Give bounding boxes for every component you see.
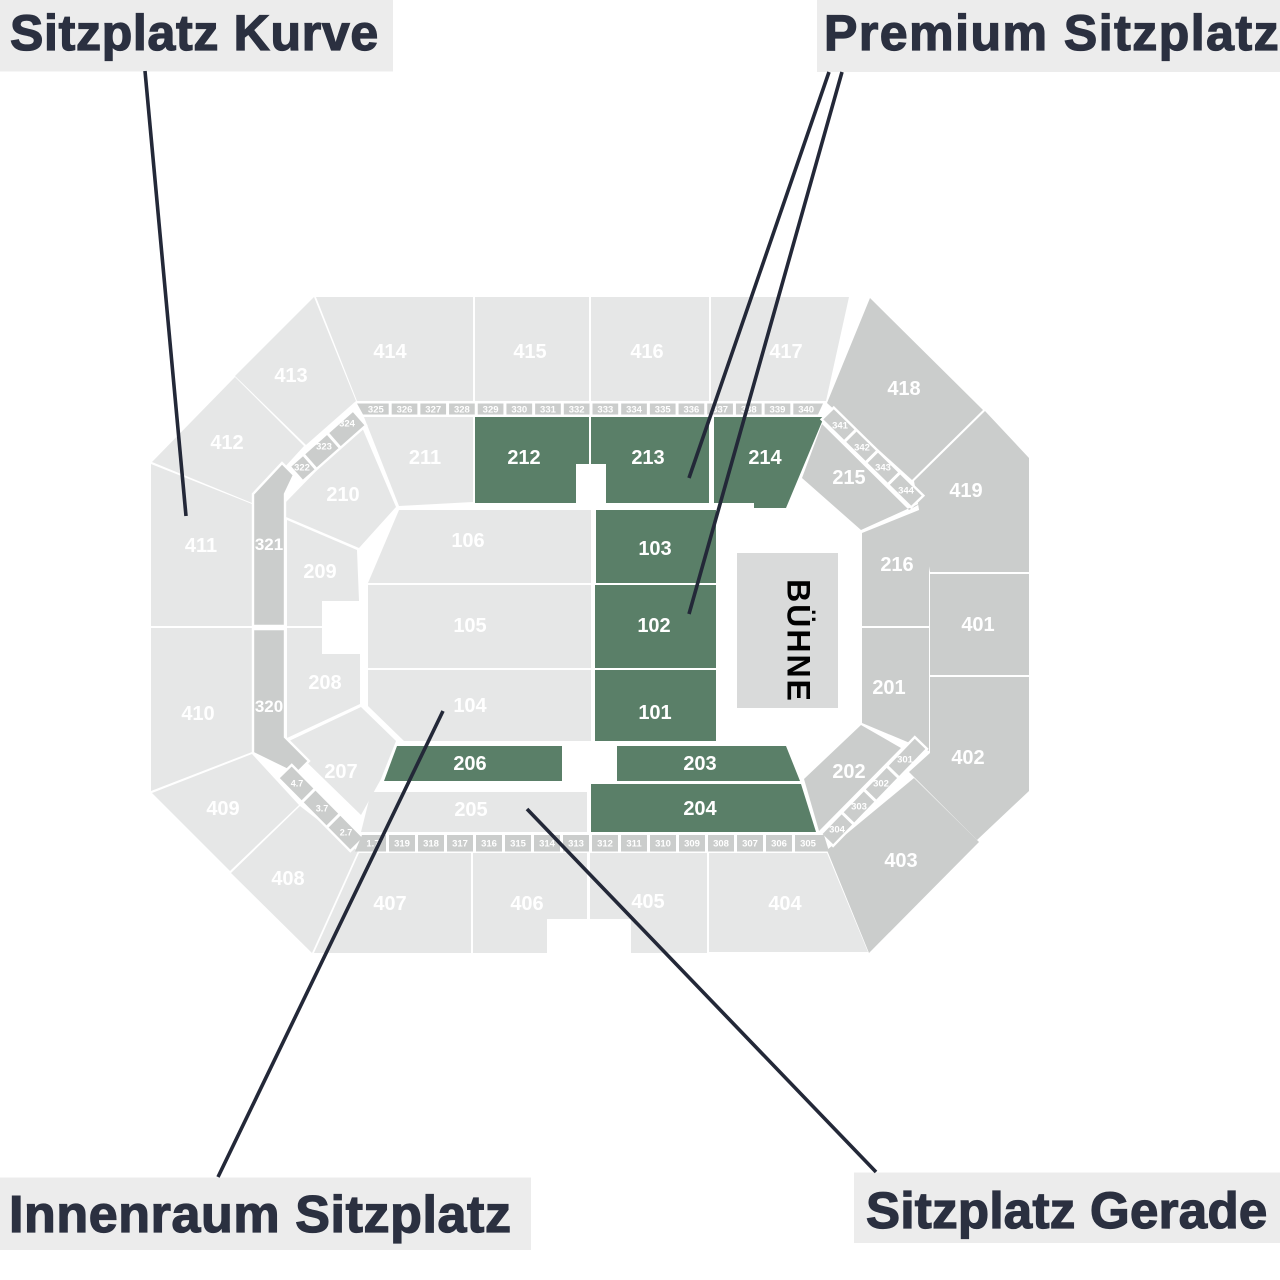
- svg-text:321: 321: [255, 535, 283, 554]
- svg-text:343: 343: [875, 462, 891, 473]
- svg-text:340: 340: [798, 404, 814, 415]
- svg-text:342: 342: [854, 442, 870, 453]
- svg-text:335: 335: [655, 404, 672, 415]
- svg-text:344: 344: [898, 485, 915, 496]
- svg-text:328: 328: [454, 404, 470, 415]
- svg-text:405: 405: [631, 891, 664, 913]
- svg-text:408: 408: [271, 868, 304, 890]
- svg-text:206: 206: [453, 753, 486, 775]
- svg-text:417: 417: [769, 341, 802, 363]
- svg-text:416: 416: [630, 341, 663, 363]
- svg-text:339: 339: [770, 404, 786, 415]
- svg-text:101: 101: [638, 702, 671, 724]
- svg-text:307: 307: [742, 838, 758, 849]
- svg-text:210: 210: [326, 484, 359, 506]
- svg-text:309: 309: [684, 838, 700, 849]
- svg-text:106: 106: [451, 530, 484, 552]
- svg-text:341: 341: [832, 420, 849, 431]
- svg-text:329: 329: [483, 404, 499, 415]
- svg-text:319: 319: [394, 838, 410, 849]
- svg-text:2.7: 2.7: [340, 827, 353, 837]
- svg-text:411: 411: [185, 535, 217, 557]
- svg-text:334: 334: [626, 404, 643, 415]
- svg-text:320: 320: [255, 697, 283, 716]
- svg-text:316: 316: [481, 838, 497, 849]
- svg-text:413: 413: [274, 365, 307, 387]
- svg-text:216: 216: [880, 554, 913, 576]
- svg-text:102: 102: [637, 615, 670, 637]
- svg-text:336: 336: [683, 404, 699, 415]
- svg-text:311: 311: [626, 838, 642, 849]
- svg-text:410: 410: [181, 703, 214, 725]
- svg-text:333: 333: [597, 404, 613, 415]
- svg-text:404: 404: [768, 893, 802, 915]
- svg-text:204: 204: [683, 798, 717, 820]
- svg-text:325: 325: [368, 404, 385, 415]
- svg-text:419: 419: [949, 480, 982, 502]
- svg-text:Premium Sitzplatz: Premium Sitzplatz: [824, 5, 1280, 61]
- svg-text:209: 209: [303, 561, 336, 583]
- svg-text:418: 418: [887, 378, 920, 400]
- svg-text:Sitzplatz Gerade: Sitzplatz Gerade: [866, 1182, 1268, 1239]
- svg-text:302: 302: [873, 778, 889, 789]
- svg-text:203: 203: [683, 753, 716, 775]
- svg-text:403: 403: [884, 850, 917, 872]
- svg-text:3.7: 3.7: [316, 803, 329, 813]
- svg-text:Sitzplatz Kurve: Sitzplatz Kurve: [10, 5, 379, 61]
- svg-text:4.7: 4.7: [291, 778, 304, 788]
- svg-text:304: 304: [829, 824, 846, 835]
- svg-text:308: 308: [713, 838, 729, 849]
- svg-text:BÜHNE: BÜHNE: [781, 579, 817, 703]
- svg-text:201: 201: [872, 677, 905, 699]
- svg-text:Innenraum Sitzplatz: Innenraum Sitzplatz: [9, 1186, 512, 1244]
- svg-text:407: 407: [373, 893, 406, 915]
- svg-text:306: 306: [771, 838, 787, 849]
- svg-text:317: 317: [452, 838, 468, 849]
- svg-text:215: 215: [832, 467, 865, 489]
- svg-text:205: 205: [454, 799, 487, 821]
- svg-text:322: 322: [294, 462, 310, 473]
- svg-text:330: 330: [511, 404, 527, 415]
- svg-text:318: 318: [423, 838, 439, 849]
- svg-text:105: 105: [453, 615, 486, 637]
- svg-text:103: 103: [638, 538, 671, 560]
- svg-text:208: 208: [308, 672, 341, 694]
- svg-text:303: 303: [851, 801, 867, 812]
- svg-text:211: 211: [409, 447, 441, 469]
- svg-text:315: 315: [510, 838, 527, 849]
- svg-text:323: 323: [316, 441, 332, 452]
- svg-text:409: 409: [206, 798, 239, 820]
- svg-text:332: 332: [569, 404, 585, 415]
- svg-text:327: 327: [425, 404, 441, 415]
- svg-text:207: 207: [324, 761, 357, 783]
- svg-text:401: 401: [961, 614, 994, 636]
- svg-text:202: 202: [832, 761, 865, 783]
- svg-text:301: 301: [897, 754, 914, 765]
- svg-text:402: 402: [951, 747, 984, 769]
- svg-text:312: 312: [597, 838, 613, 849]
- svg-text:313: 313: [568, 838, 584, 849]
- svg-text:212: 212: [507, 447, 540, 469]
- svg-text:412: 412: [210, 432, 243, 454]
- svg-text:414: 414: [373, 341, 407, 363]
- svg-text:310: 310: [655, 838, 671, 849]
- svg-text:104: 104: [453, 695, 487, 717]
- svg-text:324: 324: [339, 418, 356, 429]
- svg-text:213: 213: [631, 447, 664, 469]
- svg-text:305: 305: [800, 838, 817, 849]
- svg-text:326: 326: [397, 404, 413, 415]
- svg-text:406: 406: [510, 893, 543, 915]
- svg-text:214: 214: [748, 447, 782, 469]
- svg-text:314: 314: [539, 838, 556, 849]
- svg-text:415: 415: [513, 341, 546, 363]
- svg-text:331: 331: [540, 404, 557, 415]
